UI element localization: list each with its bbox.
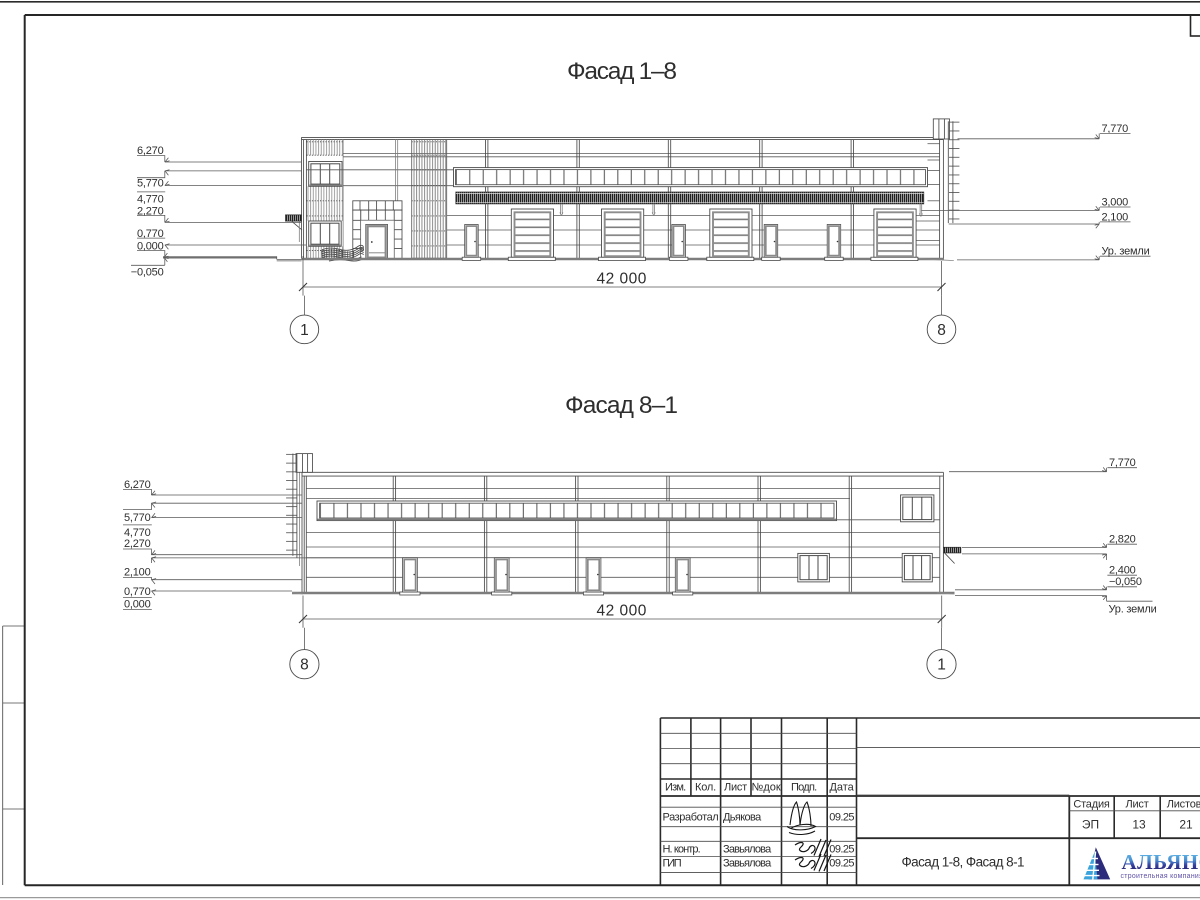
- svg-text:Фасад 8–1: Фасад 8–1: [565, 392, 678, 419]
- svg-text:2,100: 2,100: [124, 566, 151, 578]
- svg-text:Лист: Лист: [1125, 798, 1148, 810]
- svg-text:42 000: 42 000: [597, 602, 647, 619]
- svg-text:42 000: 42 000: [597, 270, 647, 287]
- svg-text:21: 21: [1179, 818, 1193, 832]
- svg-text:2,270: 2,270: [124, 538, 151, 550]
- svg-text:Кол.: Кол.: [695, 782, 716, 794]
- svg-text:Ур. земли: Ур. земли: [1109, 604, 1157, 616]
- svg-text:Н. контр.: Н. контр.: [663, 843, 701, 855]
- svg-text:Дата: Дата: [830, 782, 855, 794]
- svg-text:7,770: 7,770: [1109, 457, 1136, 469]
- svg-text:Изм.: Изм.: [665, 782, 686, 794]
- svg-text:2,820: 2,820: [1109, 533, 1136, 545]
- svg-text:5,770: 5,770: [124, 512, 151, 524]
- svg-text:Ур. земли: Ур. земли: [1102, 246, 1150, 258]
- svg-text:Завьялова: Завьялова: [723, 858, 772, 870]
- svg-text:4,770: 4,770: [124, 527, 151, 539]
- svg-text:ГИП: ГИП: [663, 858, 682, 870]
- svg-text:2,270: 2,270: [137, 206, 164, 218]
- svg-text:0,000: 0,000: [124, 599, 151, 611]
- svg-text:09.25: 09.25: [829, 843, 854, 855]
- svg-text:09.25: 09.25: [829, 858, 854, 870]
- svg-text:8: 8: [300, 657, 309, 674]
- svg-text:Фасад 1-8, Фасад 8-1: Фасад 1-8, Фасад 8-1: [902, 854, 1025, 869]
- svg-text:5,770: 5,770: [137, 178, 164, 190]
- svg-text:Стадия: Стадия: [1073, 798, 1110, 810]
- svg-text:Дьякова: Дьякова: [723, 812, 762, 824]
- svg-text:Завьялова: Завьялова: [723, 843, 772, 855]
- svg-text:13: 13: [1132, 818, 1146, 832]
- svg-text:Листов: Листов: [1167, 798, 1200, 810]
- svg-text:ЭП: ЭП: [1082, 818, 1099, 832]
- svg-text:№док: №док: [752, 782, 781, 794]
- svg-text:2,400: 2,400: [1109, 564, 1136, 576]
- svg-text:Подп.: Подп.: [791, 782, 817, 794]
- svg-text:строительная компания: строительная компания: [1121, 873, 1200, 880]
- svg-text:4,770: 4,770: [137, 194, 164, 206]
- svg-text:−0,050: −0,050: [1109, 576, 1142, 588]
- svg-text:АЛЬЯНС: АЛЬЯНС: [1122, 850, 1200, 874]
- svg-text:8: 8: [937, 322, 946, 339]
- svg-text:1: 1: [937, 657, 946, 674]
- svg-text:09.25: 09.25: [829, 812, 854, 824]
- svg-text:1: 1: [300, 322, 309, 339]
- svg-text:−0,050: −0,050: [131, 267, 164, 279]
- svg-text:Разработал: Разработал: [663, 812, 719, 824]
- svg-text:0,770: 0,770: [124, 586, 151, 598]
- svg-text:Фасад 1–8: Фасад 1–8: [567, 58, 677, 85]
- svg-text:Лист: Лист: [724, 782, 747, 794]
